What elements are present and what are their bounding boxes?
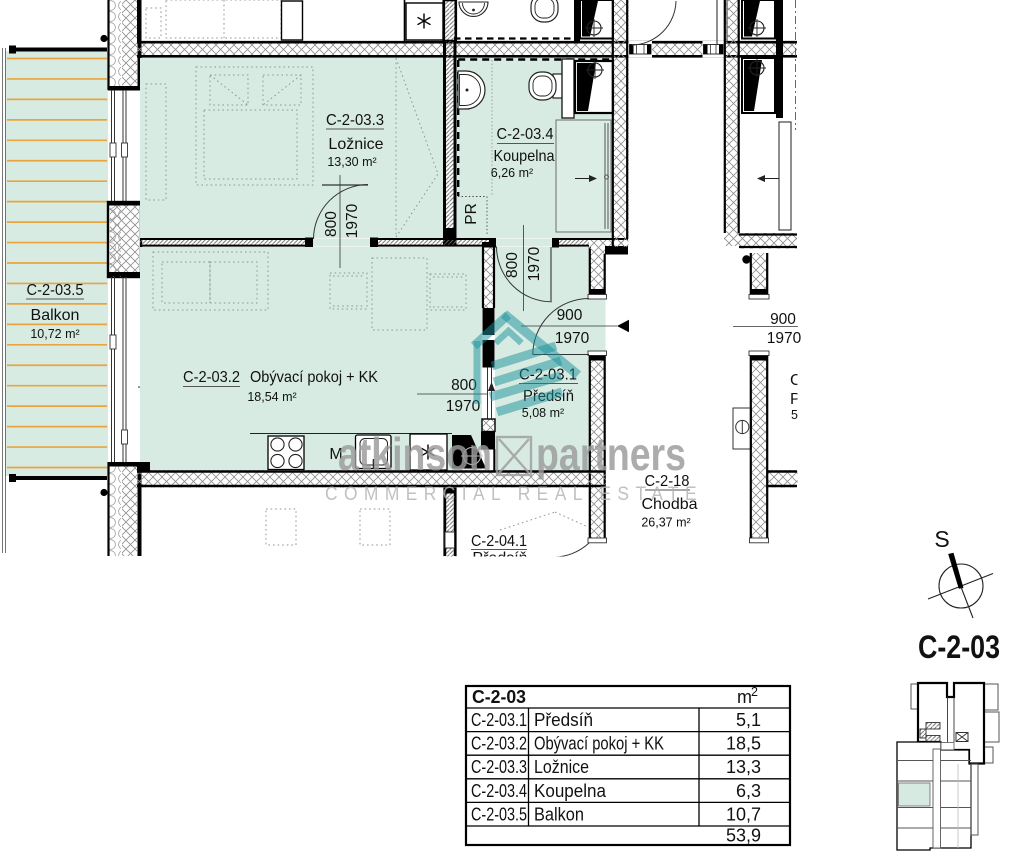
svg-text:COMMERCIAL REAL ESTATE: COMMERCIAL REAL ESTATE <box>325 484 703 505</box>
svg-text:26,37 m²: 26,37 m² <box>641 516 690 530</box>
svg-text:1970: 1970 <box>344 203 361 238</box>
svg-text:2: 2 <box>751 685 758 699</box>
svg-text:5,1: 5,1 <box>736 710 761 730</box>
svg-text:Předsíň: Předsíň <box>534 710 593 730</box>
svg-text:C-2-03: C-2-03 <box>472 687 526 707</box>
svg-text:C-2-03.1: C-2-03.1 <box>471 710 527 730</box>
svg-text:13,3: 13,3 <box>726 757 761 777</box>
svg-text:18,5: 18,5 <box>726 734 761 754</box>
svg-text:1970: 1970 <box>767 330 802 347</box>
svg-text:C-2-03.4: C-2-03.4 <box>471 781 527 801</box>
svg-text:Koupelna: Koupelna <box>534 781 607 801</box>
svg-text:S: S <box>934 526 949 552</box>
svg-text:800: 800 <box>323 211 340 237</box>
svg-text:C-2-03.3: C-2-03.3 <box>326 112 384 129</box>
svg-text:atkinson: atkinson <box>338 428 492 480</box>
svg-text:800: 800 <box>504 252 521 278</box>
svg-text:partners: partners <box>536 428 686 480</box>
svg-text:1970: 1970 <box>555 330 590 347</box>
svg-text:Ložnice: Ložnice <box>534 757 589 777</box>
svg-text:10,72 m²: 10,72 m² <box>30 327 79 341</box>
svg-text:10,7: 10,7 <box>726 804 761 824</box>
svg-text:C-2-03.4: C-2-03.4 <box>497 126 554 143</box>
svg-text:18,54 m²: 18,54 m² <box>247 390 296 404</box>
svg-text:6,3: 6,3 <box>736 781 761 801</box>
svg-text:C-2-03.2: C-2-03.2 <box>183 369 240 386</box>
svg-text:Balkon: Balkon <box>534 804 584 824</box>
svg-text:1970: 1970 <box>526 246 543 281</box>
svg-text:53,9: 53,9 <box>726 826 761 846</box>
svg-text:900: 900 <box>770 311 796 328</box>
svg-text:C-2-03.5: C-2-03.5 <box>27 282 84 299</box>
svg-text:800: 800 <box>451 377 477 394</box>
svg-text:C-2-04.1: C-2-04.1 <box>471 533 527 550</box>
svg-text:Ložnice: Ložnice <box>328 136 383 153</box>
svg-text:m: m <box>737 687 752 707</box>
svg-text:Balkon: Balkon <box>31 307 80 324</box>
svg-text:PR: PR <box>463 203 480 225</box>
svg-text:C-2-03.3: C-2-03.3 <box>471 757 527 777</box>
svg-text:Obývací pokoj + KK: Obývací pokoj + KK <box>534 734 664 754</box>
svg-text:13,30 m²: 13,30 m² <box>327 155 376 169</box>
svg-text:C-2-03.2: C-2-03.2 <box>471 734 527 754</box>
svg-text:Koupelna: Koupelna <box>494 148 555 165</box>
svg-text:5,08 m²: 5,08 m² <box>522 406 564 420</box>
svg-text:6,26 m²: 6,26 m² <box>491 166 533 180</box>
svg-text:900: 900 <box>557 307 583 324</box>
svg-text:Obývací pokoj + KK: Obývací pokoj + KK <box>250 369 378 386</box>
svg-text:C-2-03: C-2-03 <box>918 629 1000 665</box>
svg-text:C-2-03.5: C-2-03.5 <box>471 804 527 824</box>
